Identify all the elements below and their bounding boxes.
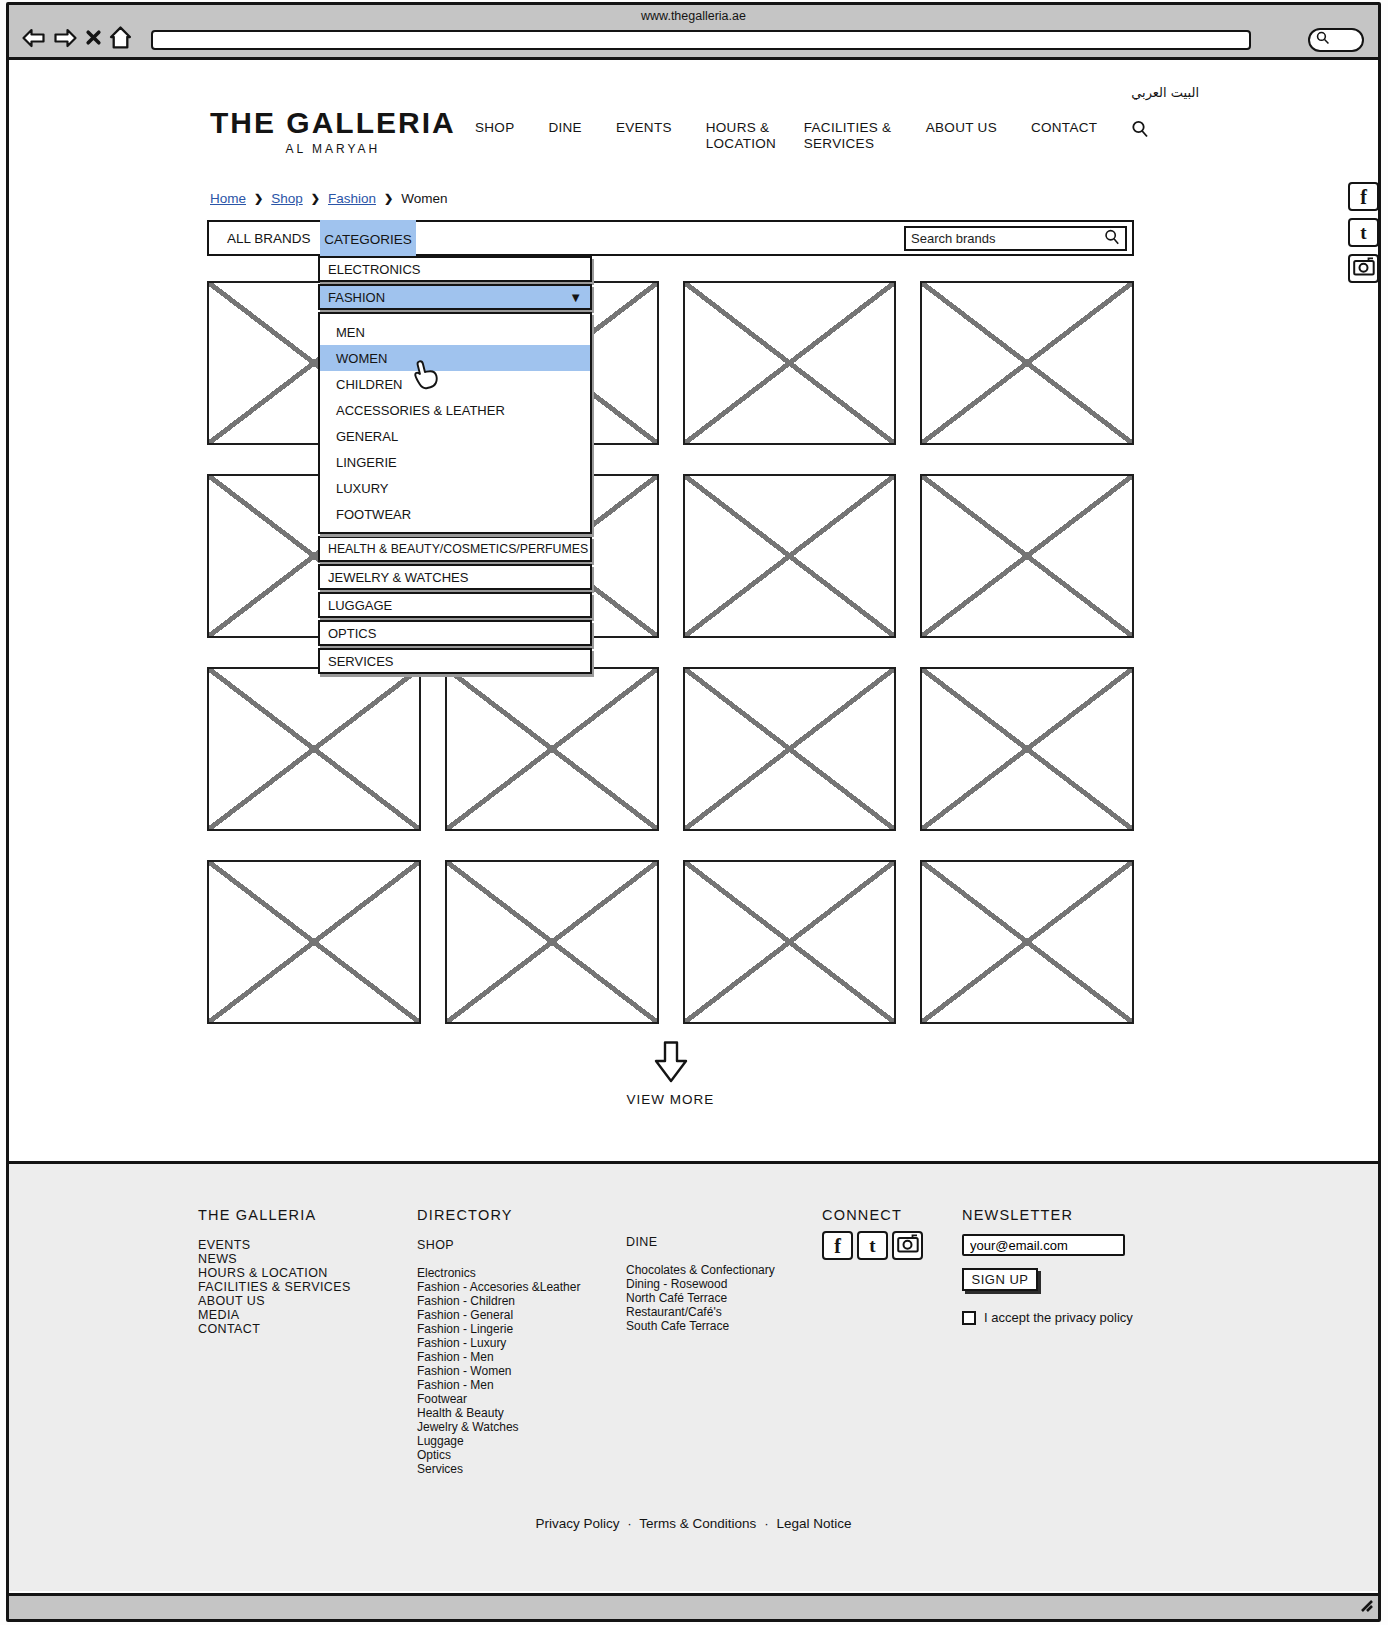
footer-link-news[interactable]: NEWS xyxy=(198,1252,351,1266)
forward-arrow-icon xyxy=(53,28,78,51)
back-button[interactable] xyxy=(21,28,46,51)
newsletter-email-input[interactable] xyxy=(964,1237,1123,1255)
brand-tile-placeholder[interactable] xyxy=(445,667,659,831)
breadcrumb-current: Women xyxy=(401,191,447,206)
breadcrumb-link-fashion[interactable]: Fashion xyxy=(328,191,376,206)
header-search-icon[interactable] xyxy=(1131,120,1149,142)
footer-link-jewelry-watches[interactable]: Jewelry & Watches xyxy=(417,1420,580,1434)
footer-link-dining-rosewood[interactable]: Dining - Rosewood xyxy=(626,1277,775,1291)
category-label: JEWELRY & WATCHES xyxy=(328,570,468,585)
subcategory-children[interactable]: CHILDREN xyxy=(320,371,590,397)
footer-link-contact[interactable]: CONTACT xyxy=(198,1322,351,1336)
category-label: OPTICS xyxy=(328,626,376,641)
tab-categories[interactable]: CATEGORIES xyxy=(320,220,416,258)
view-more-button[interactable]: VIEW MORE xyxy=(207,1041,1134,1107)
footer-link-facilities-services[interactable]: FACILITIES & SERVICES xyxy=(198,1280,351,1294)
footer-link-fashion-children[interactable]: Fashion - Children xyxy=(417,1294,580,1308)
browser-search-box[interactable] xyxy=(1308,28,1364,52)
footer-link-hours-location[interactable]: HOURS & LOCATION xyxy=(198,1266,351,1280)
nav-item-facilities-services[interactable]: FACILITIES & SERVICES xyxy=(804,120,892,152)
subcategory-lingerie[interactable]: LINGERIE xyxy=(320,449,590,475)
breadcrumb: Home ❯ Shop ❯ Fashion ❯ Women xyxy=(210,191,448,206)
brand-tile-placeholder[interactable] xyxy=(683,281,897,445)
footer-link-chocolates[interactable]: Chocolates & Confectionary xyxy=(626,1263,775,1277)
footer-heading-newsletter: NEWSLETTER xyxy=(962,1207,1133,1223)
address-bar[interactable] xyxy=(151,30,1251,50)
twitter-button[interactable]: t xyxy=(857,1231,888,1260)
nav-item-about-us[interactable]: ABOUT US xyxy=(926,120,997,136)
privacy-policy-link[interactable]: Privacy Policy xyxy=(536,1516,620,1531)
brand-search-box[interactable] xyxy=(904,226,1127,251)
footer-link-fashion-men-2[interactable]: Fashion - Men xyxy=(417,1378,580,1392)
footer-heading-connect: CONNECT xyxy=(822,1207,923,1223)
tab-all-brands[interactable]: ALL BRANDS xyxy=(209,222,329,254)
fashion-submenu: MEN WOMEN CHILDREN ACCESSORIES & LEATHER… xyxy=(318,312,592,534)
chevron-right-icon: ❯ xyxy=(311,192,320,205)
down-arrow-icon xyxy=(654,1069,688,1086)
twitter-icon: t xyxy=(869,1236,875,1255)
subcategory-women[interactable]: WOMEN xyxy=(320,345,590,371)
subcategory-men[interactable]: MEN xyxy=(320,319,590,345)
footer-subheading-dine: DINE xyxy=(626,1235,775,1249)
brand-tile-placeholder[interactable] xyxy=(920,667,1134,831)
facebook-icon: f xyxy=(834,1236,841,1256)
triangle-down-icon: ▼ xyxy=(569,290,582,305)
footer-link-footwear[interactable]: Footwear xyxy=(417,1392,580,1406)
brand-tile-placeholder[interactable] xyxy=(445,860,659,1024)
category-label: ELECTRONICS xyxy=(328,262,420,277)
twitter-icon: t xyxy=(1360,223,1366,242)
twitter-button[interactable]: t xyxy=(1348,218,1379,247)
brand-tile-placeholder[interactable] xyxy=(920,860,1134,1024)
facebook-button[interactable]: f xyxy=(1348,182,1379,211)
newsletter-email-field[interactable] xyxy=(962,1234,1125,1256)
categories-dropdown: ELECTRONICS FASHION ▼ MEN WOMEN CHILDREN… xyxy=(318,256,592,676)
footer-subheading-shop: SHOP xyxy=(417,1238,580,1252)
social-sidebar: f t xyxy=(1348,182,1379,283)
footer-link-fashion-men[interactable]: Fashion - Men xyxy=(417,1350,580,1364)
footer-link-media[interactable]: MEDIA xyxy=(198,1308,351,1322)
footer-link-fashion-women[interactable]: Fashion - Women xyxy=(417,1364,580,1378)
category-label: HEALTH & BEAUTY/COSMETICS/PERFUMES xyxy=(328,542,588,556)
legal-links: Privacy Policy · Terms & Conditions · Le… xyxy=(9,1516,1378,1531)
footer-link-electronics[interactable]: Electronics xyxy=(417,1266,580,1280)
footer-link-optics[interactable]: Optics xyxy=(417,1448,580,1462)
terms-conditions-link[interactable]: Terms & Conditions xyxy=(639,1516,756,1531)
brand-tile-placeholder[interactable] xyxy=(683,667,897,831)
logo-title: THE GALLERIA xyxy=(210,108,456,138)
nav-item-hours-location[interactable]: HOURS & LOCATION xyxy=(706,120,770,152)
footer-link-health-beauty[interactable]: Health & Beauty xyxy=(417,1406,580,1420)
footer-link-fashion-general[interactable]: Fashion - General xyxy=(417,1308,580,1322)
subcategory-luxury[interactable]: LUXURY xyxy=(320,475,590,501)
back-arrow-icon xyxy=(21,28,46,51)
brand-bar: ALL BRANDS CATEGORIES xyxy=(207,220,1134,256)
category-optics[interactable]: OPTICS xyxy=(318,620,592,646)
home-button[interactable] xyxy=(109,26,132,52)
footer-link-restaurant-cafe[interactable]: Restaurant/Café's xyxy=(626,1305,775,1319)
brand-tile-placeholder[interactable] xyxy=(920,474,1134,638)
stop-button[interactable] xyxy=(85,29,102,49)
footer-link-about-us[interactable]: ABOUT US xyxy=(198,1294,351,1308)
browser-chrome: www.thegalleria.ae xyxy=(9,5,1378,60)
instagram-button[interactable] xyxy=(892,1231,923,1260)
footer-link-north-cafe[interactable]: North Café Terrace xyxy=(626,1291,775,1305)
category-fashion[interactable]: FASHION ▼ xyxy=(318,284,592,310)
separator: · xyxy=(623,1516,636,1531)
footer-link-services[interactable]: Services xyxy=(417,1462,580,1476)
site-logo[interactable]: THE GALLERIA AL MARYAH xyxy=(210,108,456,156)
legal-notice-link[interactable]: Legal Notice xyxy=(776,1516,851,1531)
address-input[interactable] xyxy=(153,34,1249,50)
category-health-beauty[interactable]: HEALTH & BEAUTY/COSMETICS/PERFUMES xyxy=(318,536,592,562)
separator: · xyxy=(760,1516,773,1531)
instagram-button[interactable] xyxy=(1348,254,1379,283)
category-electronics[interactable]: ELECTRONICS xyxy=(318,256,592,282)
main-nav: SHOP DINE EVENTS HOURS & LOCATION FACILI… xyxy=(475,120,1149,152)
brand-tile-placeholder[interactable] xyxy=(207,860,421,1024)
breadcrumb-link-shop[interactable]: Shop xyxy=(271,191,303,206)
footer-link-fashion-accessories[interactable]: Fashion - Accesories &Leather xyxy=(417,1280,580,1294)
browser-statusbar xyxy=(9,1593,1378,1619)
close-x-icon xyxy=(85,29,102,49)
brand-tile-placeholder[interactable] xyxy=(683,860,897,1024)
facebook-button[interactable]: f xyxy=(822,1231,853,1260)
brand-tile-placeholder[interactable] xyxy=(920,281,1134,445)
signup-button[interactable]: SIGN UP xyxy=(962,1268,1038,1291)
camera-icon xyxy=(1353,257,1375,280)
nav-item-dine[interactable]: DINE xyxy=(548,120,581,136)
resize-grip-icon[interactable] xyxy=(1358,1598,1374,1616)
brand-tile-placeholder[interactable] xyxy=(207,667,421,831)
category-label: FASHION xyxy=(328,290,385,305)
chevron-right-icon: ❯ xyxy=(254,192,263,205)
brand-tile-placeholder[interactable] xyxy=(683,474,897,638)
category-label: LUGGAGE xyxy=(328,598,392,613)
privacy-label: I accept the privacy policy xyxy=(984,1310,1133,1325)
category-label: SERVICES xyxy=(328,654,394,669)
footer-link-luggage[interactable]: Luggage xyxy=(417,1434,580,1448)
logo-subtitle: AL MARYAH xyxy=(210,142,456,156)
footer-link-fashion-luxury[interactable]: Fashion - Luxury xyxy=(417,1336,580,1350)
footer-link-south-cafe[interactable]: South Cafe Terrace xyxy=(626,1319,775,1333)
subcategory-accessories-leather[interactable]: ACCESSORIES & LEATHER xyxy=(320,397,590,423)
footer-heading-galleria: THE GALLERIA xyxy=(198,1207,351,1223)
home-icon xyxy=(109,26,132,52)
forward-button[interactable] xyxy=(53,28,78,51)
footer-link-events[interactable]: EVENTS xyxy=(198,1238,351,1252)
brand-search-input[interactable] xyxy=(911,231,1104,246)
subcategory-general[interactable]: GENERAL xyxy=(320,423,590,449)
arabic-language-link[interactable]: البيت العربي xyxy=(1029,85,1199,100)
category-luggage[interactable]: LUGGAGE xyxy=(318,592,592,618)
chevron-right-icon: ❯ xyxy=(384,192,393,205)
footer: THE GALLERIA EVENTS NEWS HOURS & LOCATIO… xyxy=(9,1161,1378,1591)
footer-heading-directory: DIRECTORY xyxy=(417,1207,580,1223)
page-title: www.thegalleria.ae xyxy=(9,9,1378,23)
category-jewelry-watches[interactable]: JEWELRY & WATCHES xyxy=(318,564,592,590)
browser-window: www.thegalleria.ae xyxy=(6,2,1381,1622)
camera-icon xyxy=(897,1234,919,1257)
view-more-label: VIEW MORE xyxy=(207,1092,1134,1107)
privacy-checkbox[interactable] xyxy=(962,1311,976,1325)
category-services[interactable]: SERVICES xyxy=(318,648,592,674)
magnifier-icon xyxy=(1104,229,1120,249)
magnifier-icon xyxy=(1316,31,1330,49)
nav-item-contact[interactable]: CONTACT xyxy=(1031,120,1097,136)
footer-link-fashion-lingerie[interactable]: Fashion - Lingerie xyxy=(417,1322,580,1336)
facebook-icon: f xyxy=(1360,187,1367,207)
nav-item-shop[interactable]: SHOP xyxy=(475,120,514,136)
breadcrumb-link-home[interactable]: Home xyxy=(210,191,246,206)
subcategory-footwear[interactable]: FOOTWEAR xyxy=(320,501,590,527)
nav-item-events[interactable]: EVENTS xyxy=(616,120,672,136)
